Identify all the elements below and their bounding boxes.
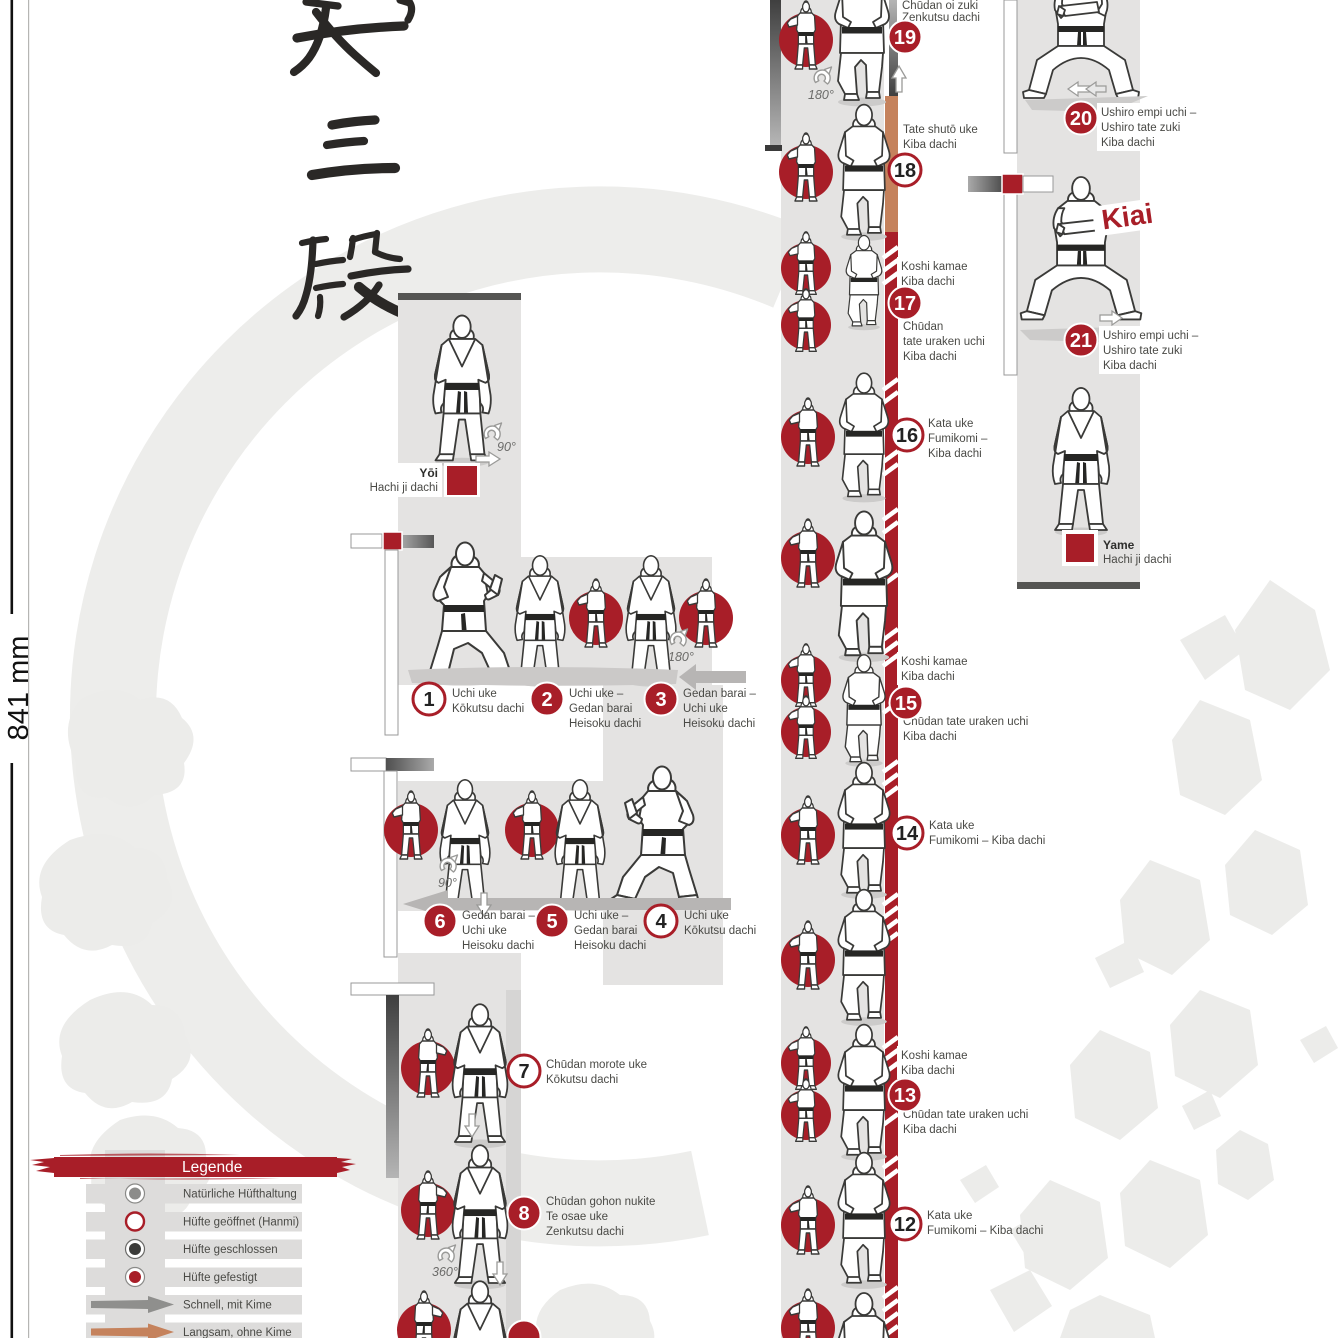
- svg-text:Kata uke: Kata uke: [928, 418, 973, 430]
- svg-text:Uchi uke: Uchi uke: [684, 910, 729, 922]
- svg-text:Ushiro tate zuki: Ushiro tate zuki: [1101, 122, 1180, 134]
- svg-text:Ushiro tate zuki: Ushiro tate zuki: [1103, 345, 1182, 357]
- svg-text:Kiba dachi: Kiba dachi: [903, 731, 957, 743]
- svg-text:Legende: Legende: [182, 1159, 242, 1176]
- svg-text:Zenkutsu dachi: Zenkutsu dachi: [546, 1226, 624, 1238]
- svg-text:Hüfte geschlossen: Hüfte geschlossen: [183, 1244, 278, 1256]
- svg-text:15: 15: [895, 693, 917, 715]
- svg-text:Langsam, ohne Kime: Langsam, ohne Kime: [183, 1327, 292, 1338]
- svg-text:19: 19: [894, 27, 916, 49]
- svg-text:Chūdan oi zuki: Chūdan oi zuki: [902, 0, 978, 12]
- svg-text:Natürliche Hüfthaltung: Natürliche Hüfthaltung: [183, 1189, 297, 1201]
- svg-text:Heisoku dachi: Heisoku dachi: [462, 940, 534, 952]
- svg-text:Kata uke: Kata uke: [927, 1210, 972, 1222]
- svg-text:360°: 360°: [432, 1265, 458, 1279]
- svg-text:Kata uke: Kata uke: [929, 820, 974, 832]
- svg-text:Yōi: Yōi: [419, 466, 438, 480]
- svg-text:5: 5: [546, 911, 557, 933]
- svg-text:Uchi uke: Uchi uke: [462, 925, 507, 937]
- svg-text:Chūdan: Chūdan: [903, 321, 943, 333]
- svg-text:Kiba dachi: Kiba dachi: [1103, 360, 1157, 372]
- svg-text:Yame: Yame: [1103, 538, 1135, 552]
- svg-text:Hüfte geöffnet (Hanmi): Hüfte geöffnet (Hanmi): [183, 1217, 299, 1229]
- svg-text:Schnell, mit Kime: Schnell, mit Kime: [183, 1300, 272, 1312]
- svg-text:Ushiro empi uchi –: Ushiro empi uchi –: [1103, 330, 1199, 342]
- svg-text:Uchi uke: Uchi uke: [683, 703, 728, 715]
- svg-text:Gedan barai –: Gedan barai –: [683, 688, 756, 700]
- svg-text:20: 20: [1070, 108, 1092, 130]
- svg-text:Fumikomi – Kiba dachi: Fumikomi – Kiba dachi: [927, 1225, 1043, 1237]
- svg-text:Hüfte gefestigt: Hüfte gefestigt: [183, 1272, 258, 1284]
- svg-text:Hachi ji dachi: Hachi ji dachi: [370, 482, 438, 494]
- svg-text:Kiba dachi: Kiba dachi: [903, 1124, 957, 1136]
- svg-text:7: 7: [518, 1061, 529, 1083]
- svg-text:Gedan barai –: Gedan barai –: [462, 910, 535, 922]
- svg-text:12: 12: [894, 1214, 916, 1236]
- svg-text:Heisoku dachi: Heisoku dachi: [683, 718, 755, 730]
- svg-text:Uchi uke –: Uchi uke –: [574, 910, 629, 922]
- svg-text:Chūdan tate uraken uchi: Chūdan tate uraken uchi: [903, 716, 1028, 728]
- svg-text:Koshi kamae: Koshi kamae: [901, 261, 967, 273]
- svg-text:Koshi kamae: Koshi kamae: [901, 1050, 967, 1062]
- svg-text:Te osae uke: Te osae uke: [546, 1211, 608, 1223]
- svg-text:180°: 180°: [668, 650, 694, 664]
- svg-text:21: 21: [1070, 330, 1092, 352]
- svg-text:Ushiro empi uchi –: Ushiro empi uchi –: [1101, 107, 1197, 119]
- svg-text:Fumikomi – Kiba dachi: Fumikomi – Kiba dachi: [929, 835, 1045, 847]
- svg-text:90°: 90°: [438, 876, 457, 890]
- svg-text:1: 1: [423, 689, 434, 711]
- svg-text:Kiba dachi: Kiba dachi: [903, 139, 957, 151]
- svg-text:90°: 90°: [497, 440, 516, 454]
- svg-text:3: 3: [655, 689, 666, 711]
- svg-text:Chūdan morote uke: Chūdan morote uke: [546, 1059, 647, 1071]
- svg-text:8: 8: [518, 1203, 529, 1225]
- svg-text:6: 6: [434, 911, 445, 933]
- svg-text:Kiba dachi: Kiba dachi: [903, 351, 957, 363]
- svg-text:17: 17: [894, 293, 916, 315]
- svg-text:180°: 180°: [808, 88, 834, 102]
- svg-text:4: 4: [655, 911, 667, 933]
- svg-text:Kōkutsu dachi: Kōkutsu dachi: [452, 703, 524, 715]
- svg-text:Gedan barai: Gedan barai: [569, 703, 632, 715]
- svg-text:tate uraken uchi: tate uraken uchi: [903, 336, 985, 348]
- svg-text:Kiba dachi: Kiba dachi: [928, 448, 982, 460]
- svg-text:Heisoku dachi: Heisoku dachi: [569, 718, 641, 730]
- svg-text:Uchi uke –: Uchi uke –: [569, 688, 624, 700]
- svg-text:Gedan barai: Gedan barai: [574, 925, 637, 937]
- svg-text:Koshi kamae: Koshi kamae: [901, 656, 967, 668]
- svg-text:16: 16: [896, 425, 918, 447]
- svg-text:Uchi uke: Uchi uke: [452, 688, 497, 700]
- svg-text:14: 14: [896, 823, 919, 845]
- svg-text:Kiba dachi: Kiba dachi: [1101, 137, 1155, 149]
- svg-text:13: 13: [894, 1085, 916, 1107]
- svg-text:Hachi ji dachi: Hachi ji dachi: [1103, 554, 1171, 566]
- svg-text:Heisoku dachi: Heisoku dachi: [574, 940, 646, 952]
- svg-text:18: 18: [894, 160, 916, 182]
- svg-text:Kiba dachi: Kiba dachi: [901, 1065, 955, 1077]
- svg-text:Chūdan tate uraken uchi: Chūdan tate uraken uchi: [903, 1109, 1028, 1121]
- svg-text:Fumikomi –: Fumikomi –: [928, 433, 988, 445]
- svg-text:Tate shutō uke: Tate shutō uke: [903, 124, 978, 136]
- svg-text:2: 2: [541, 689, 552, 711]
- svg-text:Kōkutsu dachi: Kōkutsu dachi: [684, 925, 756, 937]
- svg-text:Kiba dachi: Kiba dachi: [901, 671, 955, 683]
- svg-text:Kōkutsu dachi: Kōkutsu dachi: [546, 1074, 618, 1086]
- svg-text:Chūdan gohon nukite: Chūdan gohon nukite: [546, 1196, 655, 1208]
- svg-text:841 mm: 841 mm: [3, 636, 35, 741]
